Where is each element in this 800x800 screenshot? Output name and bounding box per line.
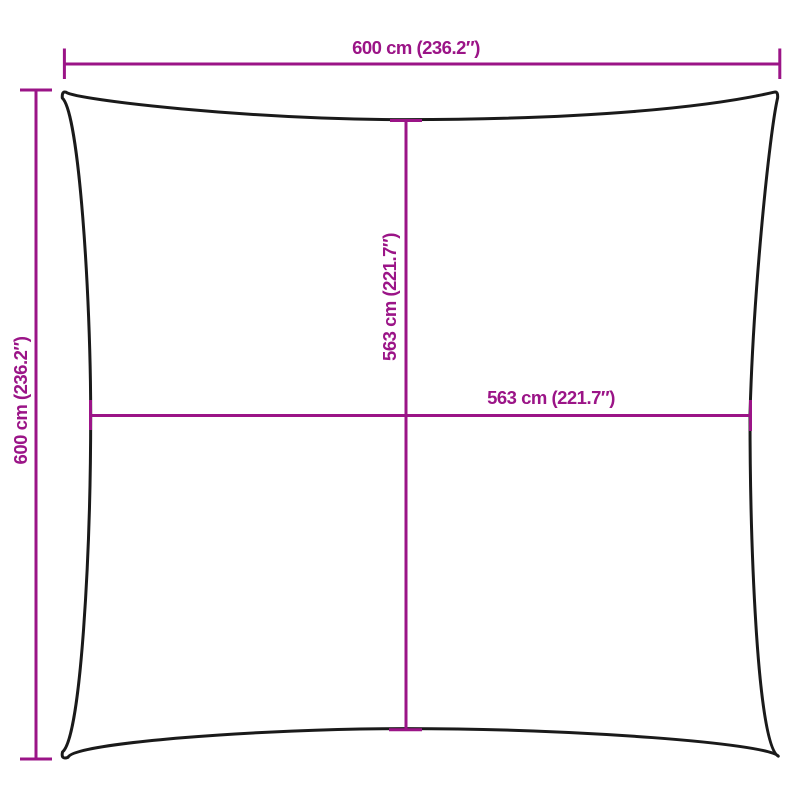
- svg-text:600 cm (236.2″): 600 cm (236.2″): [352, 37, 480, 58]
- svg-text:563 cm (221.7″): 563 cm (221.7″): [487, 387, 615, 408]
- svg-text:600 cm (236.2″): 600 cm (236.2″): [10, 336, 31, 464]
- svg-text:563 cm (221.7″): 563 cm (221.7″): [379, 233, 400, 361]
